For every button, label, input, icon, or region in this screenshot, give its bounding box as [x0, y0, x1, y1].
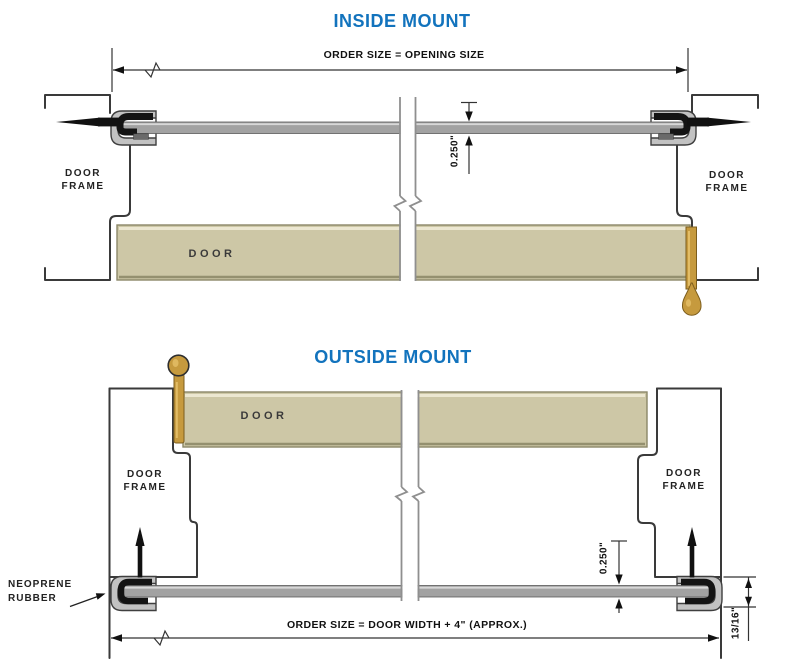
rail-thickness-dimension	[461, 103, 477, 175]
mounting-screw-left-icon	[135, 527, 144, 578]
outside-housing-height-label: 13/16"	[731, 607, 742, 639]
outside-door-label: DOOR	[241, 410, 288, 422]
break-gap	[401, 94, 416, 284]
outside-right-door-frame-label: DOOR FRAME	[662, 467, 705, 493]
mount-instructions-diagram: INSIDE MOUNT ORDER SIZE = OPENING SIZE D…	[0, 0, 786, 670]
inside-right-door-frame-label: DOOR FRAME	[705, 169, 748, 195]
door-frame-profile-right	[638, 389, 721, 659]
neoprene-rubber-label: NEOPRENE RUBBER	[8, 578, 72, 605]
mounting-screw-right-icon	[687, 118, 751, 127]
mounting-screw-left-icon	[56, 118, 120, 127]
rail-thickness-dimension	[611, 541, 627, 613]
order-size-dimension	[111, 631, 719, 645]
inside-mount-diagram	[45, 48, 758, 315]
diagram-linework	[0, 0, 786, 670]
outside-rail-thickness-label: 0.250"	[599, 542, 610, 574]
mounting-screw-right-icon	[687, 527, 696, 578]
inside-order-size-dimension-label: ORDER SIZE = OPENING SIZE	[324, 49, 485, 61]
inside-rail-thickness-label: 0.250"	[450, 135, 461, 167]
neoprene-callout-arrow	[70, 593, 106, 606]
seal-block-left	[134, 134, 149, 140]
inside-left-door-frame-label: DOOR FRAME	[61, 167, 104, 193]
inside-door-label: DOOR	[189, 248, 236, 260]
outside-mount-title: OUTSIDE MOUNT	[314, 347, 472, 368]
outside-left-door-frame-label: DOOR FRAME	[123, 468, 166, 494]
inside-mount-title: INSIDE MOUNT	[333, 11, 470, 32]
outside-order-size-dimension-label: ORDER SIZE = DOOR WIDTH + 4" (APPROX.)	[287, 619, 527, 631]
outside-mount-diagram	[70, 355, 756, 658]
seal-block-right	[659, 134, 674, 140]
